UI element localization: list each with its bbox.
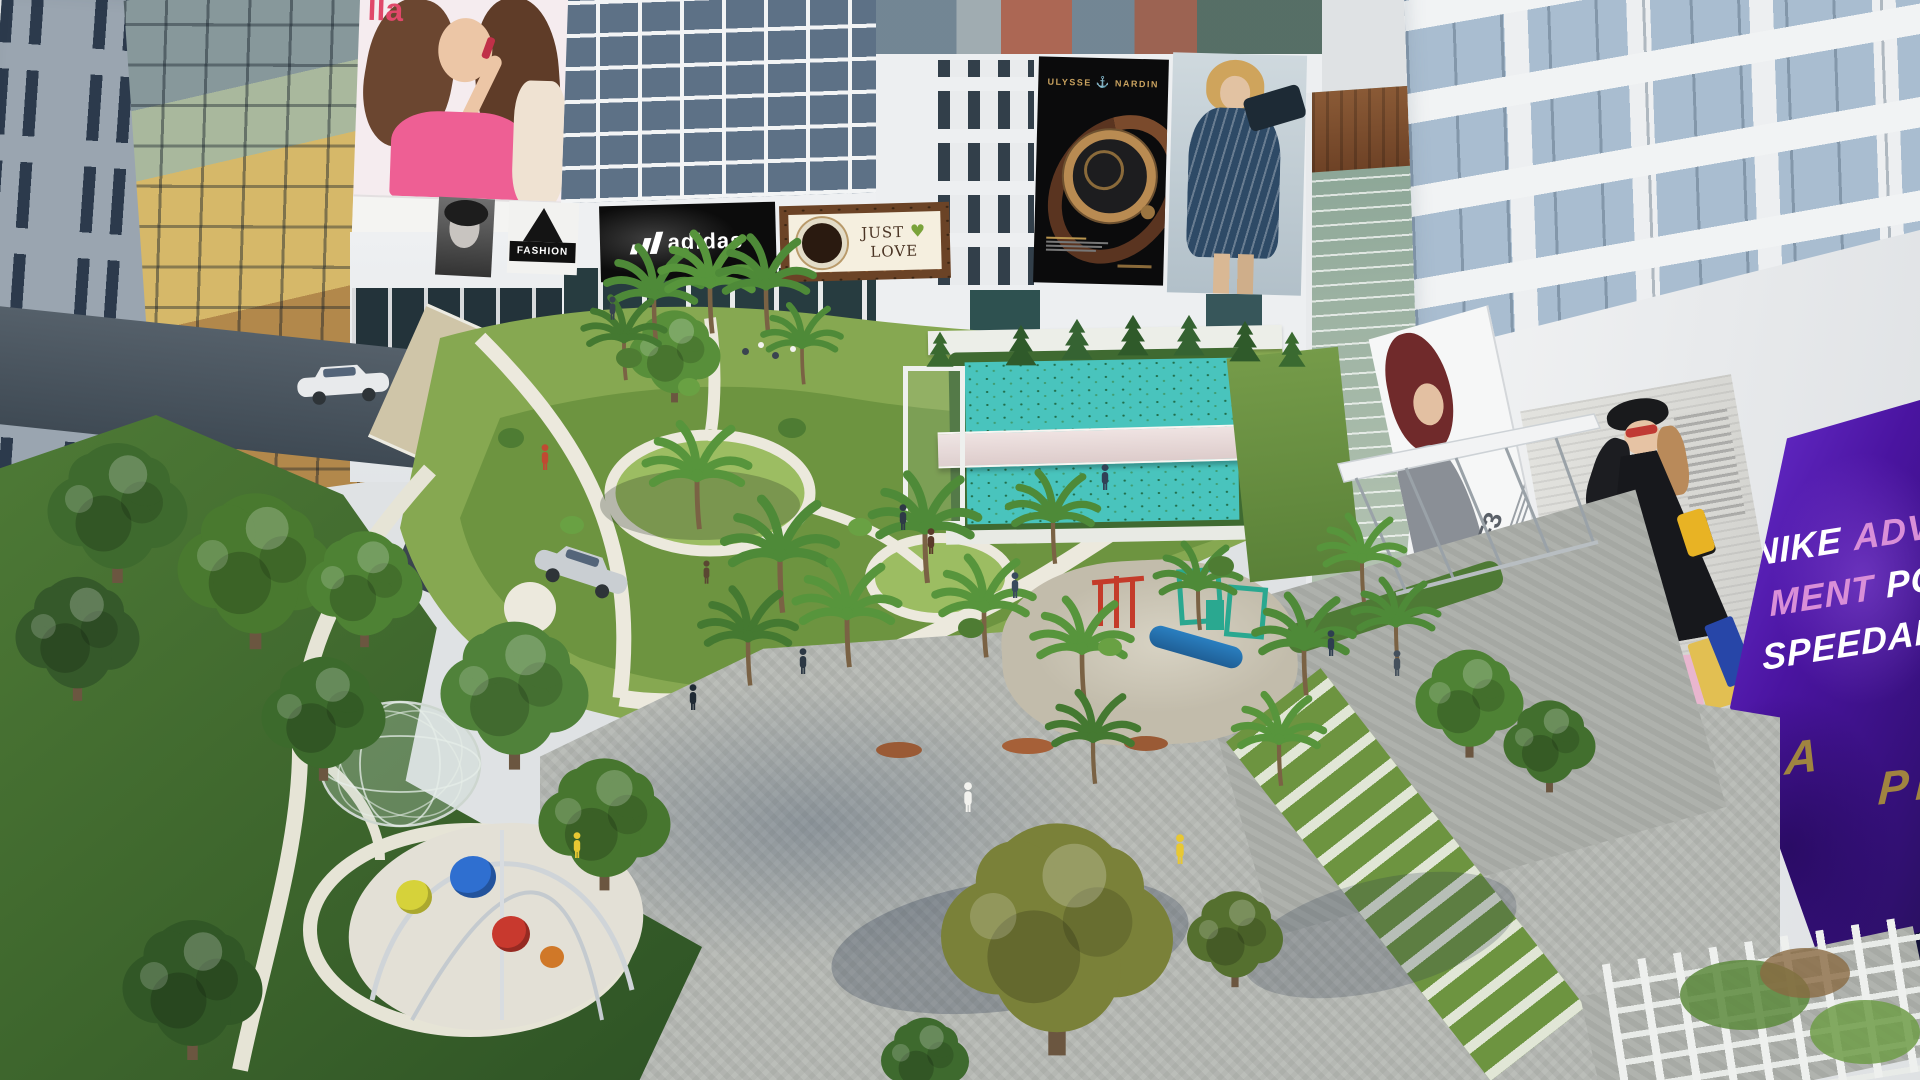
nike-word-adve: ADVE [1853, 501, 1920, 558]
play-pod-orange [540, 946, 564, 968]
model-pink-top [389, 110, 528, 203]
conifer-tree [1166, 304, 1212, 368]
un-footer-mark [1117, 264, 1151, 268]
play-pod-red [492, 916, 530, 952]
tower-a-glass-grid [554, 0, 878, 204]
palm-tree [692, 578, 804, 690]
un-caption-line [1046, 245, 1102, 248]
tree [236, 632, 411, 787]
pedestrian [540, 444, 550, 470]
tower-b-window-slits [938, 60, 1034, 285]
un-brand-1: ULYSSE [1047, 77, 1091, 88]
cafe-dot [742, 348, 749, 355]
conifer-tree [1054, 308, 1100, 372]
tower-b-roofline-reflection [876, 0, 1322, 54]
billboard-bw-model [435, 197, 495, 278]
palm-tree [1000, 462, 1106, 568]
conifer-tree [1110, 304, 1156, 368]
pedestrian [1100, 464, 1110, 490]
billboard-fashion: FASHION [507, 201, 579, 275]
bush [616, 348, 642, 368]
love-word: LOVE [870, 242, 918, 261]
un-caption-lines [1046, 235, 1108, 255]
pedestrian [1010, 572, 1020, 598]
pedestrian [688, 684, 698, 710]
model-cardigan [511, 80, 567, 208]
pedestrian [702, 560, 711, 584]
bush [560, 516, 584, 534]
un-brand-2: NARDIN [1115, 78, 1159, 89]
just-love-text: JUST ♥ LOVE [847, 221, 942, 261]
play-pod-blue [450, 856, 496, 898]
conifer-tree [1272, 322, 1312, 378]
architectural-render: F3 NIKEADVE MENTPOST [0, 0, 1920, 1080]
pedestrian [1392, 650, 1402, 676]
un-caption-line [1046, 241, 1108, 245]
bush [848, 518, 872, 536]
trellis-greenery [1810, 1000, 1920, 1064]
palm-tree [1226, 684, 1332, 790]
pedestrian [798, 648, 808, 674]
lipstick-brand-partial: lla [367, 0, 404, 29]
tree [90, 892, 295, 1067]
un-brand-row: ULYSSE ⚓ NARDIN [1038, 74, 1168, 90]
trellis-dry-patch [1760, 948, 1850, 998]
palm-tree [1148, 534, 1248, 634]
un-caption-line [1046, 249, 1096, 252]
child-on-playground [572, 832, 582, 858]
conifer-tree [920, 322, 960, 378]
striped-dress [1186, 107, 1282, 259]
tree [1482, 682, 1617, 797]
nike-text-block: NIKEADVE MENTPOST SPEEDART [1751, 487, 1920, 685]
heart-icon: ♥ [910, 221, 927, 241]
anchor-icon: ⚓ [1096, 77, 1112, 89]
pedestrian [1174, 834, 1186, 864]
bush [498, 428, 524, 448]
sign-partial-pi: PI [1877, 754, 1920, 816]
conifer-tree [998, 314, 1044, 378]
bush [1208, 556, 1234, 576]
tree [850, 1000, 1000, 1080]
car-white [293, 357, 394, 408]
bush [1098, 638, 1122, 656]
bush [958, 618, 984, 638]
tree [1170, 872, 1300, 992]
palm-tree [1040, 682, 1146, 788]
tree [512, 732, 697, 897]
fashion-triangle [523, 207, 564, 242]
pedestrian [608, 296, 617, 320]
pedestrian [926, 528, 936, 554]
fashion-title-bar: FASHION [509, 241, 576, 263]
pedestrian [962, 782, 974, 812]
billboard-ulysse-nardin: ULYSSE ⚓ NARDIN [1033, 56, 1169, 285]
tree [0, 552, 165, 707]
palm-tree [576, 288, 672, 384]
pedestrian [1326, 630, 1336, 656]
pedestrian [898, 504, 908, 530]
palm-tree [756, 296, 848, 388]
un-caption-line [1046, 237, 1086, 240]
conifer-tree [1222, 310, 1268, 374]
bush [678, 378, 700, 396]
just-word: JUST [861, 223, 904, 242]
billboard-blonde-model [1167, 52, 1307, 295]
fashion-title: FASHION [517, 245, 569, 258]
play-pod-yellow [396, 880, 432, 914]
bush [778, 418, 806, 438]
